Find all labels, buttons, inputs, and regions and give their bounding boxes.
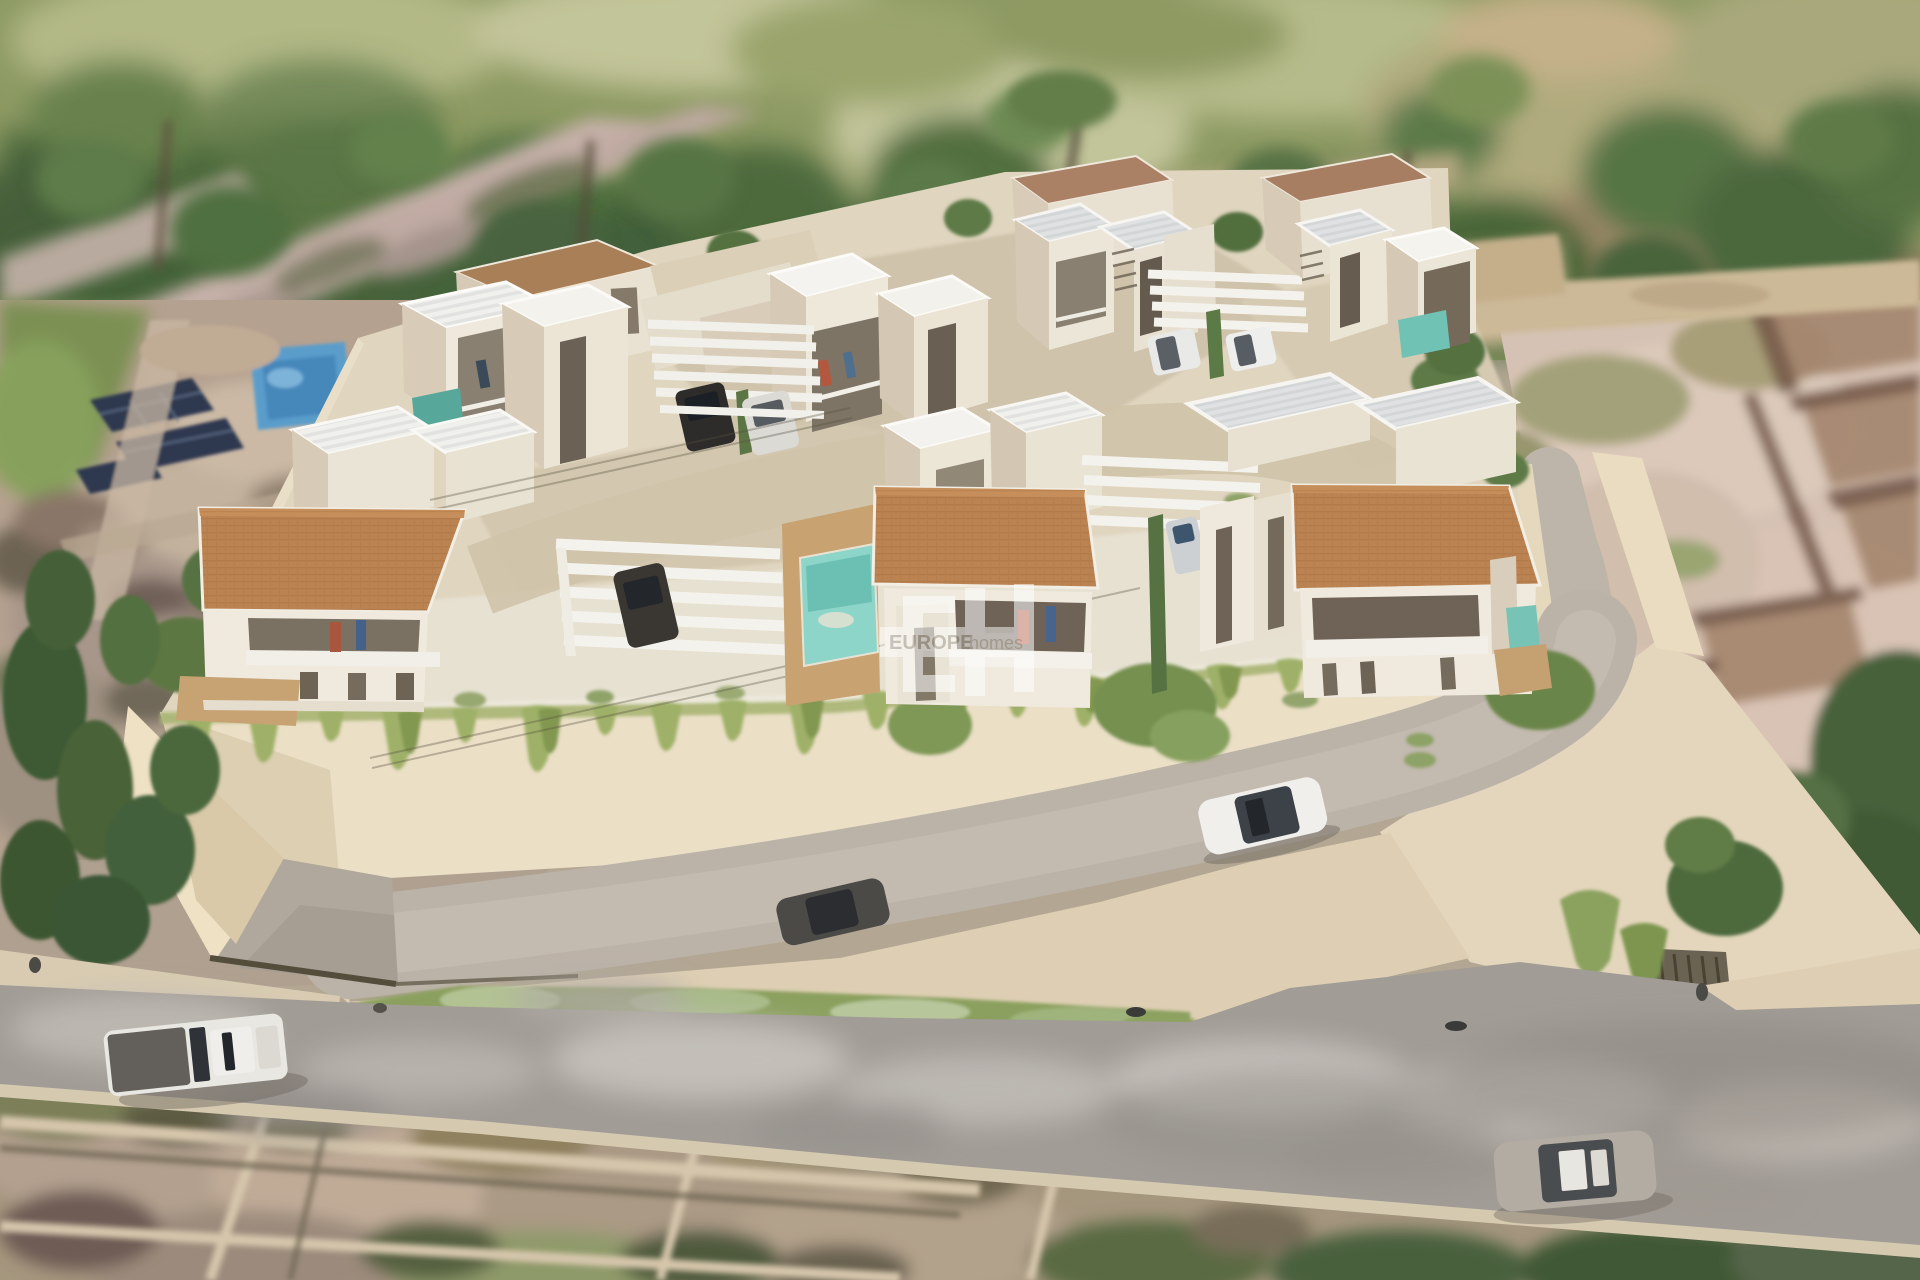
svg-text:EUROPE: EUROPE bbox=[889, 632, 973, 654]
svg-text:homes: homes bbox=[969, 633, 1023, 653]
